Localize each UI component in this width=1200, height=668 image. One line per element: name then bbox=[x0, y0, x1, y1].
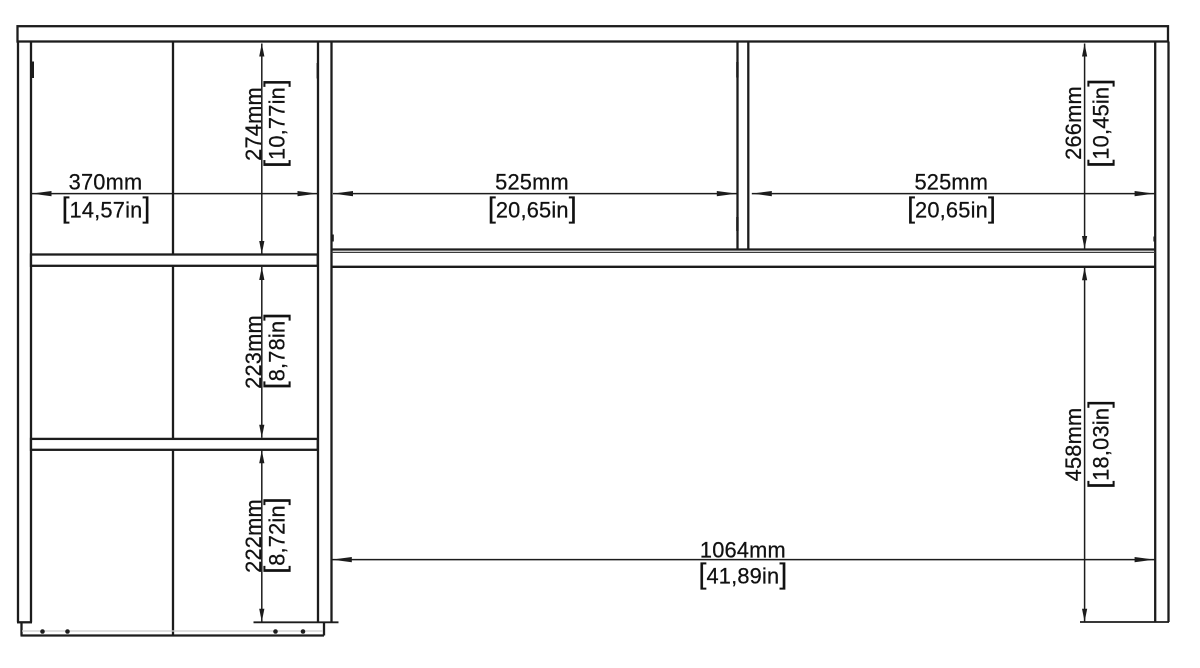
svg-text:1064mm: 1064mm bbox=[700, 538, 786, 563]
svg-text:[20,65in]: [20,65in] bbox=[907, 192, 996, 224]
svg-text:525mm: 525mm bbox=[914, 170, 988, 195]
svg-text:[10,45in]: [10,45in] bbox=[1083, 79, 1115, 168]
svg-text:458mm: 458mm bbox=[1061, 408, 1086, 482]
svg-text:274mm: 274mm bbox=[241, 87, 266, 161]
svg-text:370mm: 370mm bbox=[69, 170, 143, 195]
svg-text:[41,89in]: [41,89in] bbox=[699, 558, 788, 590]
svg-text:525mm: 525mm bbox=[495, 170, 569, 195]
svg-text:266mm: 266mm bbox=[1061, 86, 1086, 160]
svg-text:223mm: 223mm bbox=[241, 315, 266, 389]
svg-text:[8,72in]: [8,72in] bbox=[260, 497, 292, 573]
svg-text:[8,78in]: [8,78in] bbox=[260, 313, 292, 389]
svg-text:[20,65in]: [20,65in] bbox=[488, 192, 577, 224]
svg-text:[18,03in]: [18,03in] bbox=[1083, 400, 1115, 489]
svg-text:[10,77in]: [10,77in] bbox=[260, 79, 292, 168]
svg-text:[14,57in]: [14,57in] bbox=[62, 192, 151, 224]
svg-text:222mm: 222mm bbox=[241, 499, 266, 573]
